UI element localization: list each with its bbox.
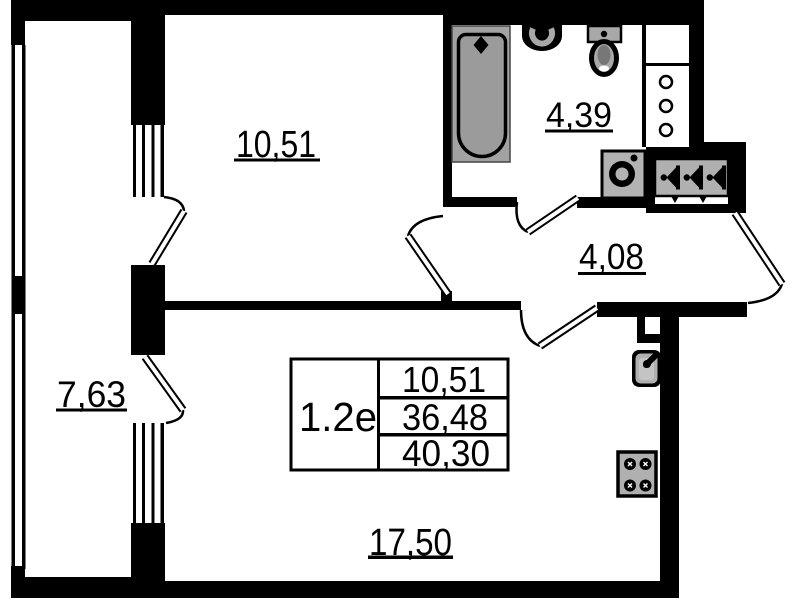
svg-text:4,08: 4,08 [579,236,644,277]
svg-text:40,30: 40,30 [402,433,490,474]
svg-text:36,48: 36,48 [402,397,488,438]
svg-text:4,39: 4,39 [546,96,612,135]
svg-text:1.2е: 1.2е [299,394,377,440]
svg-text:10,51: 10,51 [402,359,486,400]
